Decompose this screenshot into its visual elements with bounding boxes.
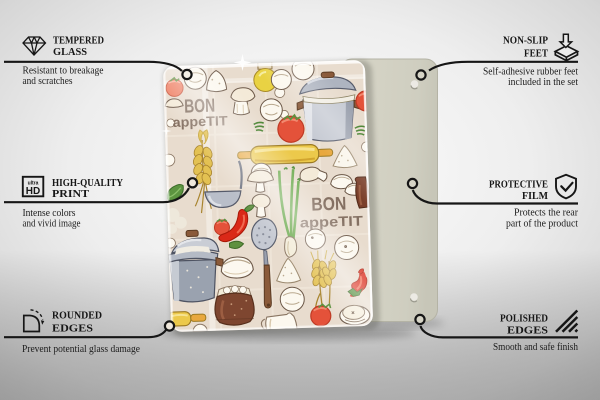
svg-text:EDGES: EDGES <box>507 325 548 336</box>
svg-text:and vivid image: and vivid image <box>23 218 81 229</box>
svg-text:included in the set: included in the set <box>508 77 578 88</box>
svg-text:Smooth and safe finish: Smooth and safe finish <box>493 342 579 353</box>
svg-text:TEMPERED: TEMPERED <box>53 36 104 47</box>
svg-text:and scratches: and scratches <box>23 76 73 87</box>
svg-text:Prevent potential glass damage: Prevent potential glass damage <box>22 344 140 355</box>
svg-text:POLISHED: POLISHED <box>500 314 548 325</box>
svg-text:NON-SLIP: NON-SLIP <box>503 36 549 47</box>
svg-text:FEET: FEET <box>524 48 548 59</box>
svg-text:PROTECTIVE: PROTECTIVE <box>489 180 548 191</box>
svg-text:EDGES: EDGES <box>52 324 93 335</box>
svg-text:HD: HD <box>26 186 40 197</box>
svg-text:Resistant to breakage: Resistant to breakage <box>23 66 104 77</box>
svg-text:PRINT: PRINT <box>52 189 89 200</box>
svg-text:HIGH-QUALITY: HIGH-QUALITY <box>52 178 123 189</box>
svg-text:GLASS: GLASS <box>53 47 87 58</box>
svg-text:Protects the rear: Protects the rear <box>514 208 578 219</box>
svg-text:FILM: FILM <box>522 191 548 202</box>
svg-text:part of the product: part of the product <box>506 219 578 230</box>
svg-text:ROUNDED: ROUNDED <box>52 311 102 322</box>
